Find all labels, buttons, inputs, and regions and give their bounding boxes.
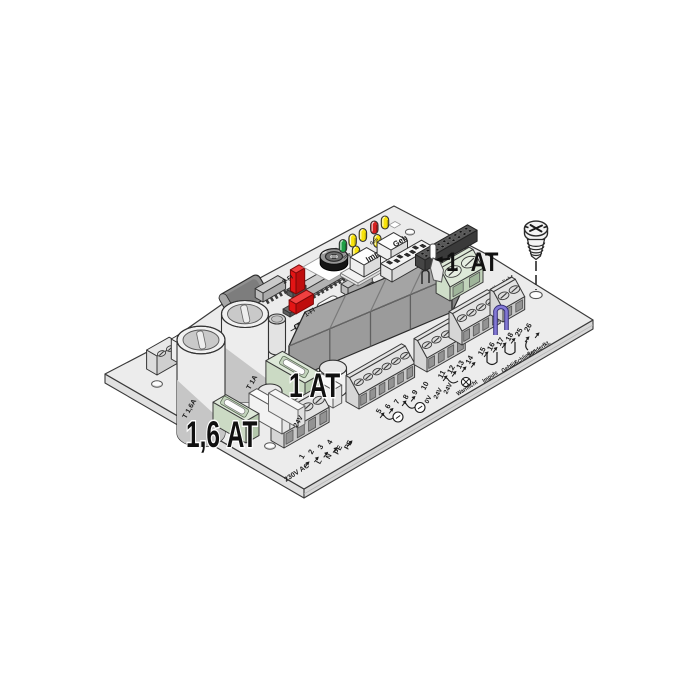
svg-text:1,6 AT: 1,6 AT bbox=[186, 414, 257, 455]
svg-text:1 AT: 1 AT bbox=[289, 367, 340, 405]
svg-text:1 AT: 1 AT bbox=[446, 248, 498, 278]
